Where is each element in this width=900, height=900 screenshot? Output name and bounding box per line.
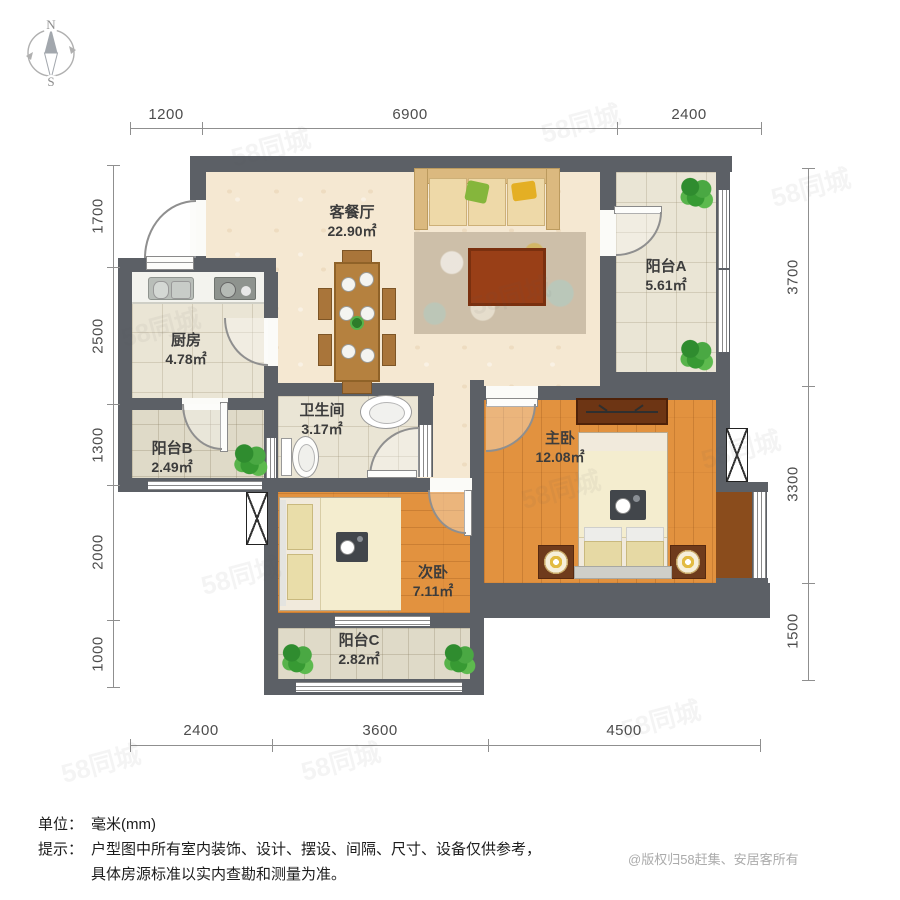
bathroom-door-leaf [367,470,417,478]
room-label-master: 主卧12.08㎡ [535,430,584,466]
dining-chair [342,380,372,394]
window [296,681,462,693]
wall [190,156,206,202]
room-label-second: 次卧7.11㎡ [413,564,453,600]
compass-icon: N S [20,12,82,88]
dimension-line-right [808,168,809,680]
wall [278,478,430,492]
kitchen-stove [214,277,256,300]
room-label-balcony-c: 阳台C2.82㎡ [338,632,379,668]
floorplan-page: N S [0,0,900,900]
dim-bottom-1: 2400 [183,722,218,739]
dimension-line-left [113,165,114,687]
nightstand [538,545,574,579]
unit-value: 毫米(mm) [91,812,156,837]
master-bed-headboard [574,566,672,579]
flue-shaft [246,492,268,545]
dining-chair [318,288,332,320]
entrance-threshold [146,256,194,270]
watermark: 58同城 [767,158,855,215]
room-label-balcony-a: 阳台A5.61㎡ [645,258,686,294]
dimension-line-bottom [130,745,760,746]
dim-bottom-3: 4500 [606,722,641,739]
dining-chair [318,334,332,366]
nightstand [670,545,706,579]
dim-bottom-2: 3600 [362,722,397,739]
wall [418,396,433,425]
bed-tray [610,490,646,520]
kitchen-sink [148,277,194,300]
wall [264,272,278,318]
copyright-watermark: @版权归58赶集、安居客所有 [628,849,799,868]
wall [118,258,132,492]
window [717,270,730,352]
compass-north-label: N [46,17,56,32]
sofa-pillow-yellow [511,180,537,201]
room-label-balcony-b: 阳台B2.49㎡ [151,440,192,476]
second-bed [279,497,401,611]
watermark: 58同城 [297,732,385,789]
plant [282,642,314,676]
window [148,480,262,491]
bathroom-door-frame [418,425,433,477]
bay-window-wall [716,482,768,492]
plant [444,642,476,676]
compass-south-label: S [47,74,54,88]
wall [118,398,182,410]
window [335,615,430,627]
unit-label: 单位： [38,812,83,837]
notes-block: 单位： 毫米(mm) 提示： 户型图中所有室内装饰、设计、摆设、间隔、尺寸、设备… [38,812,541,887]
dim-left-5: 1000 [90,636,107,671]
bathroom-sink [360,395,412,429]
dining-chair [382,288,396,320]
flue-shaft [726,428,748,482]
dim-left-4: 2000 [90,534,107,569]
dim-top-1: 1200 [148,106,183,123]
coffee-table [468,248,546,306]
plant [680,338,714,372]
sofa-cushion [429,178,467,226]
wall [600,156,616,386]
window [717,190,730,268]
toilet-bowl [292,436,319,478]
dim-left-3: 1300 [90,427,107,462]
wall [118,258,276,272]
wardrobe [576,398,668,425]
sofa-arm [414,168,428,230]
dim-right-1: 3700 [785,259,802,294]
dining-chair [382,334,396,366]
room-label-living: 客餐厅22.90㎡ [327,204,376,240]
plant [680,176,714,210]
wall [228,398,278,410]
wall [470,583,770,618]
tip-label: 提示： [38,837,83,887]
sofa-arm [546,168,560,230]
plant [234,442,268,478]
tip-line2: 具体房源标准以实内查勘和测量为准。 [91,862,541,887]
dim-top-3: 2400 [671,106,706,123]
balcony-a-door-gap [600,210,616,256]
dim-left-2: 2500 [90,318,107,353]
room-label-kitchen: 厨房4.78㎡ [165,332,206,368]
dim-right-2: 3300 [785,466,802,501]
sofa-pillow-green [464,180,490,204]
tip-line1: 户型图中所有室内装饰、设计、摆设、间隔、尺寸、设备仅供参考， [91,837,541,862]
room-label-bathroom: 卫生间3.17㎡ [299,402,344,438]
entrance-door-arc [144,200,196,258]
dim-right-3: 1500 [785,613,802,648]
watermark: 58同城 [57,734,145,791]
table-plant [350,316,364,330]
dimension-line-top [130,128,761,129]
watermark: 58同城 [537,94,625,151]
dim-top-2: 6900 [392,106,427,123]
bay-window-sill [716,492,754,578]
dim-left-1: 1700 [90,198,107,233]
toilet-tank [281,438,292,476]
bay-window [752,492,767,578]
wall [600,372,730,386]
